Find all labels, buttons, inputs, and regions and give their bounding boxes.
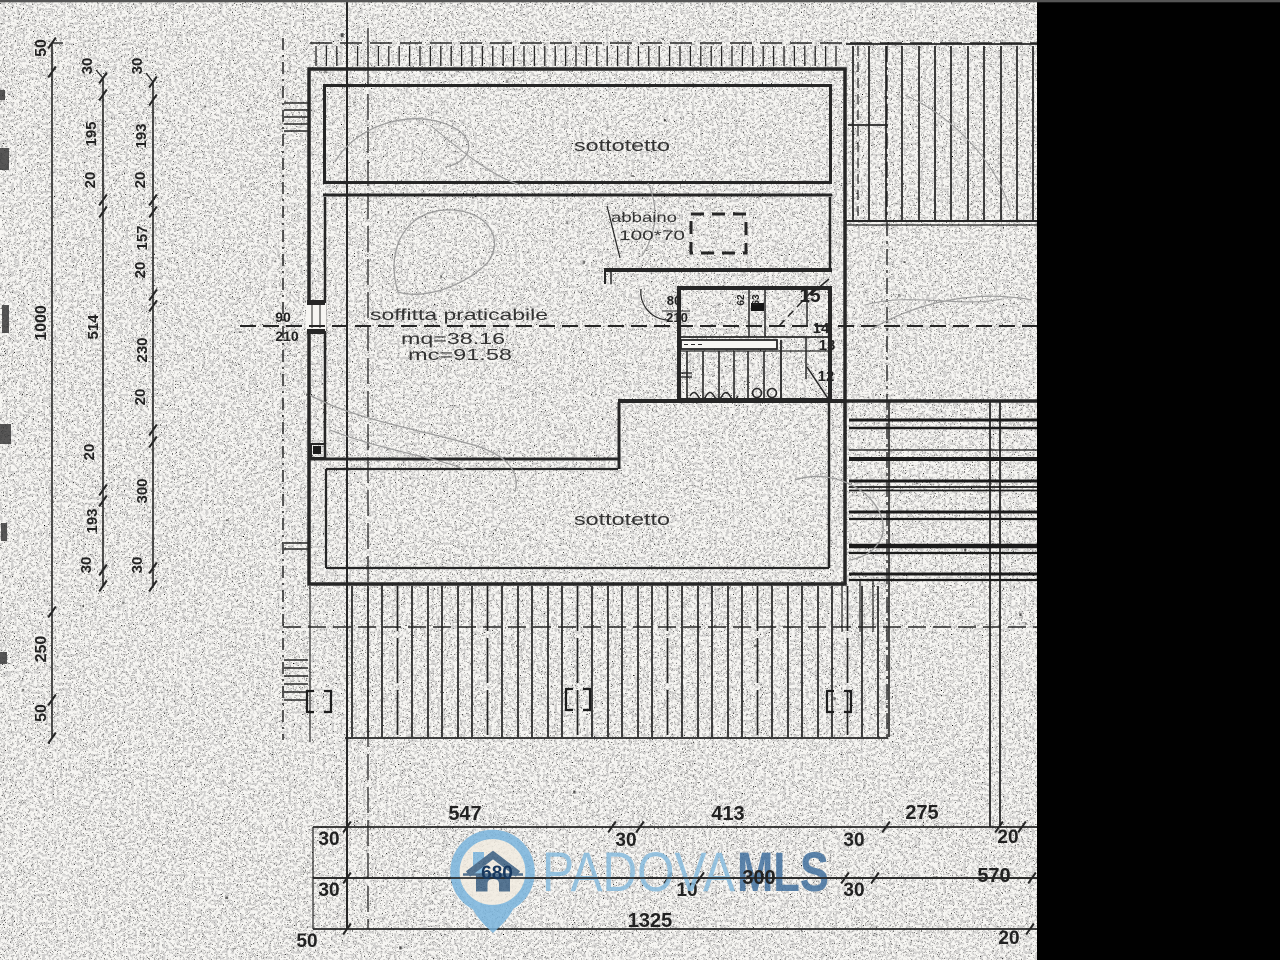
svg-text:90: 90 bbox=[275, 309, 291, 325]
svg-text:20: 20 bbox=[132, 172, 149, 189]
svg-text:abbaino: abbaino bbox=[611, 209, 677, 225]
svg-text:570: 570 bbox=[977, 865, 1010, 887]
svg-text:30: 30 bbox=[78, 557, 95, 574]
svg-text:1000: 1000 bbox=[33, 305, 50, 341]
svg-text:250: 250 bbox=[33, 636, 50, 663]
svg-text:157: 157 bbox=[134, 225, 151, 250]
svg-text:30: 30 bbox=[79, 58, 96, 75]
svg-text:sottotetto: sottotetto bbox=[574, 136, 670, 155]
svg-text:soffitta praticabile: soffitta praticabile bbox=[370, 307, 548, 324]
svg-text:20: 20 bbox=[132, 262, 149, 279]
svg-text:50: 50 bbox=[296, 931, 317, 952]
svg-text:PADOVA: PADOVA bbox=[542, 840, 736, 903]
svg-text:63: 63 bbox=[751, 294, 762, 306]
svg-text:1325: 1325 bbox=[628, 910, 673, 932]
svg-text:20: 20 bbox=[82, 172, 99, 189]
svg-text:230: 230 bbox=[134, 337, 151, 362]
svg-text:mc=91.58: mc=91.58 bbox=[408, 347, 512, 364]
svg-text:12: 12 bbox=[818, 368, 835, 385]
svg-text:50: 50 bbox=[33, 704, 50, 722]
svg-text:210: 210 bbox=[275, 328, 299, 344]
svg-text:50: 50 bbox=[33, 39, 50, 57]
svg-text:30: 30 bbox=[318, 829, 339, 850]
svg-text:20: 20 bbox=[998, 928, 1019, 949]
svg-text:20: 20 bbox=[132, 389, 149, 406]
svg-text:195: 195 bbox=[83, 121, 100, 146]
svg-text:680: 680 bbox=[481, 863, 513, 884]
svg-text:mq=38.16: mq=38.16 bbox=[401, 331, 505, 348]
svg-text:547: 547 bbox=[448, 803, 481, 825]
svg-text:30: 30 bbox=[129, 557, 146, 574]
svg-text:30: 30 bbox=[843, 830, 864, 851]
svg-text:30: 30 bbox=[843, 880, 864, 901]
svg-text:193: 193 bbox=[84, 508, 101, 533]
svg-text:100*70: 100*70 bbox=[619, 227, 685, 243]
svg-text:300: 300 bbox=[134, 478, 151, 503]
svg-text:80: 80 bbox=[667, 293, 681, 308]
svg-text:20: 20 bbox=[81, 444, 98, 461]
svg-text:14: 14 bbox=[813, 320, 830, 337]
svg-text:193: 193 bbox=[133, 123, 150, 148]
svg-text:30: 30 bbox=[129, 58, 146, 75]
svg-text:62: 62 bbox=[736, 294, 747, 306]
svg-text:sottotetto: sottotetto bbox=[574, 510, 670, 529]
svg-text:300: 300 bbox=[742, 867, 775, 889]
svg-text:514: 514 bbox=[85, 314, 102, 340]
svg-text:210: 210 bbox=[666, 310, 688, 325]
svg-text:15: 15 bbox=[799, 286, 821, 307]
svg-text:413: 413 bbox=[711, 803, 744, 825]
svg-text:275: 275 bbox=[905, 802, 938, 824]
svg-text:13: 13 bbox=[819, 337, 836, 354]
svg-text:30: 30 bbox=[318, 880, 339, 901]
svg-text:20: 20 bbox=[997, 827, 1018, 848]
